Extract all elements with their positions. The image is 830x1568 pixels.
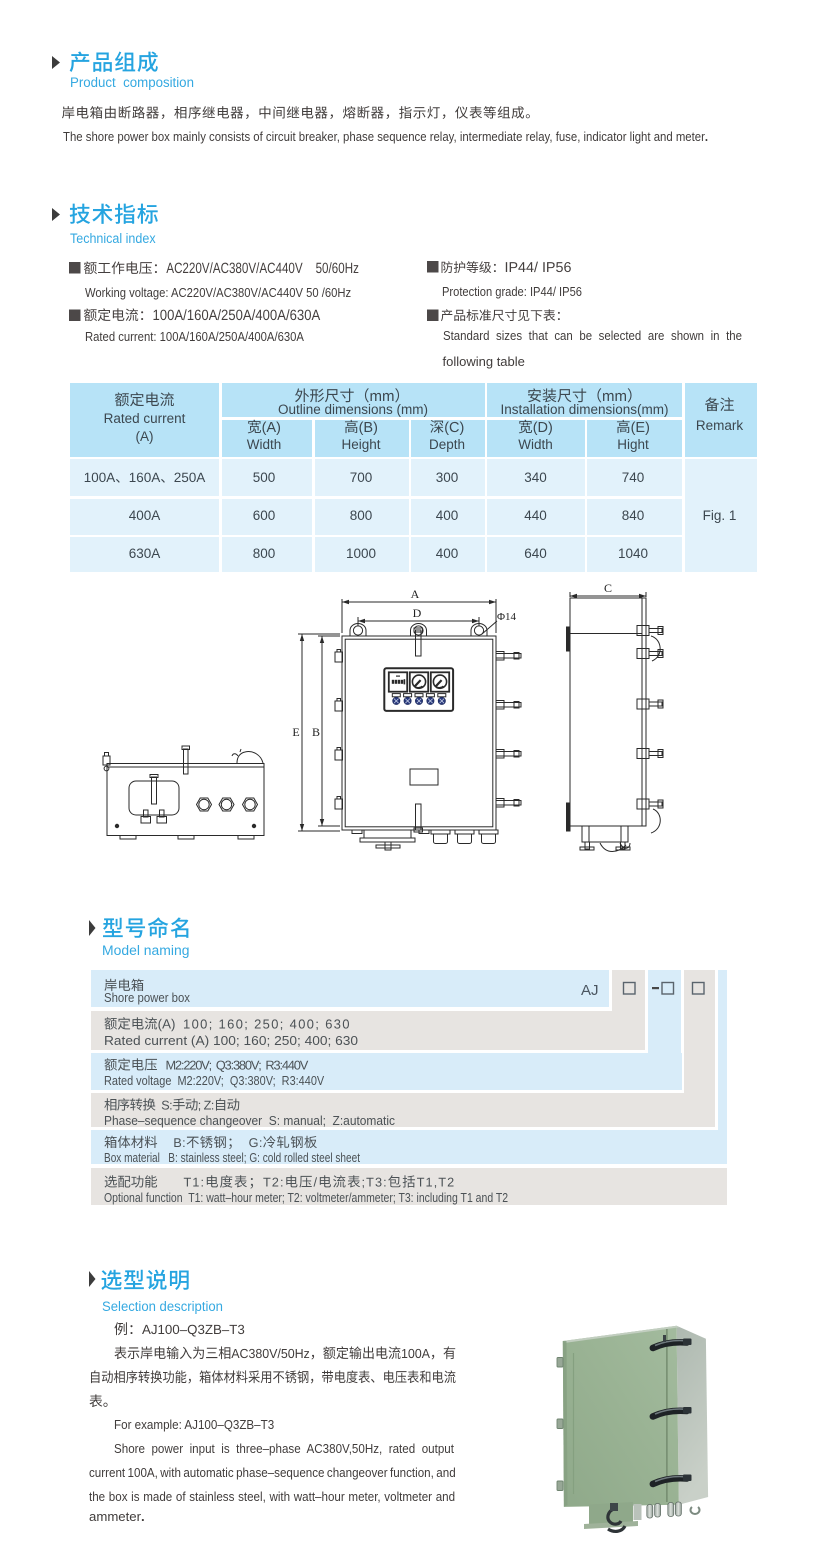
svg-text:Φ14: Φ14 [497,611,517,623]
svg-text:C: C [604,581,612,595]
svg-text:E: E [292,725,299,739]
svg-text:D: D [413,606,422,620]
svg-text:B: B [312,725,320,739]
svg-text:A: A [411,587,420,601]
